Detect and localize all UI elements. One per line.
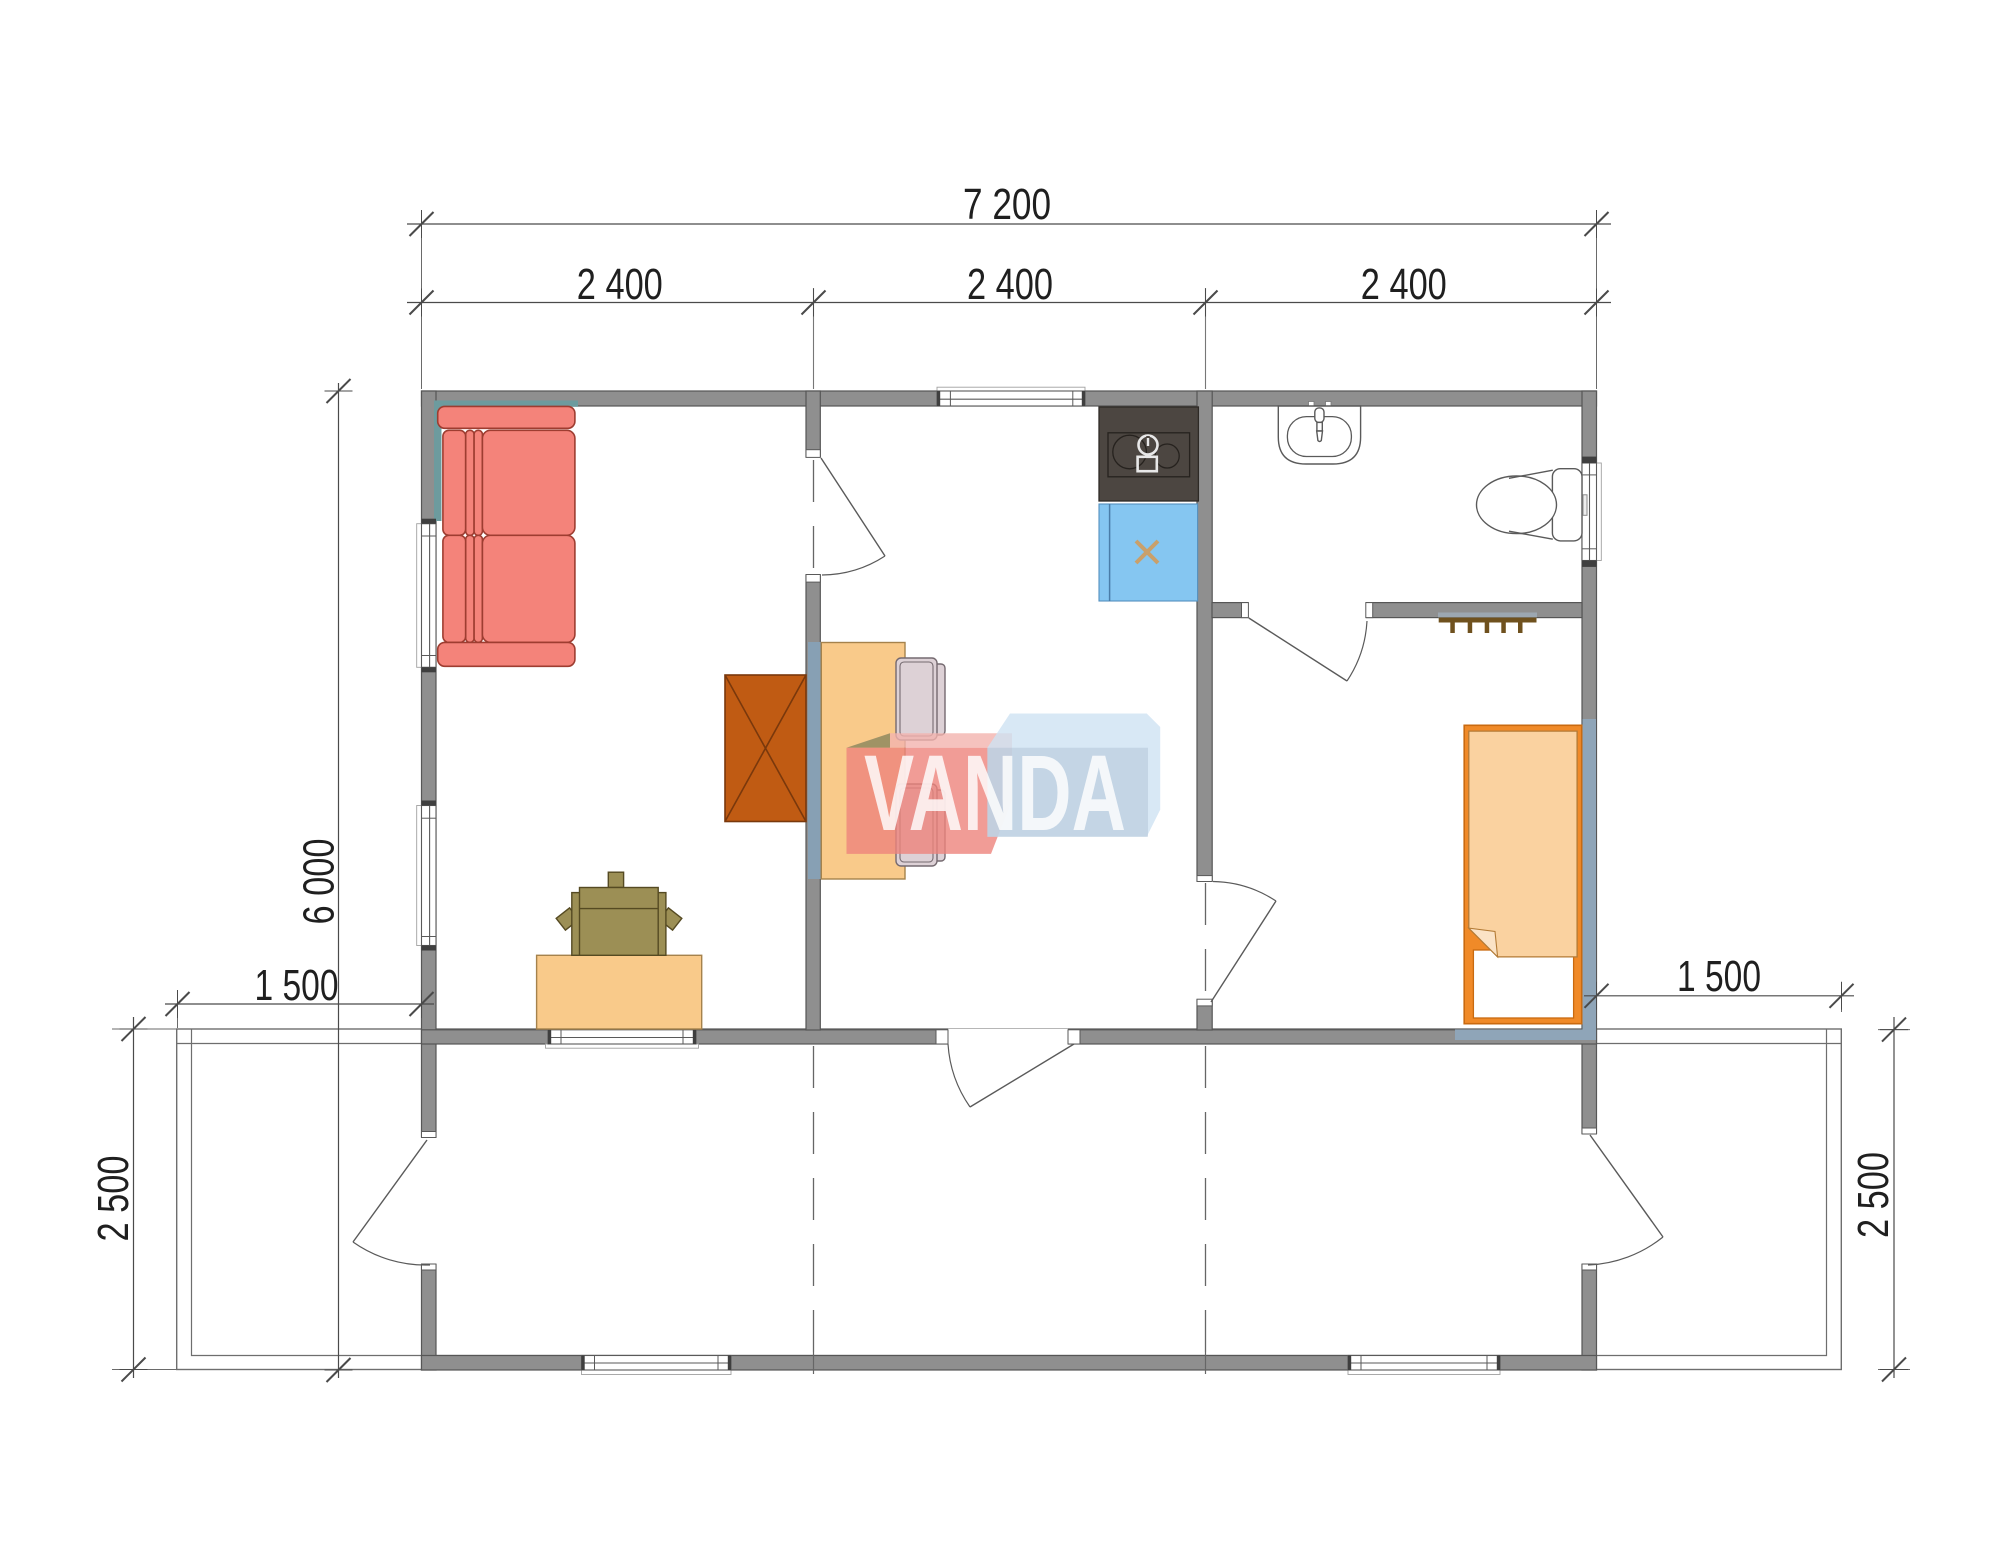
svg-text:2 400: 2 400 — [577, 260, 663, 309]
svg-text:2 500: 2 500 — [1849, 1152, 1898, 1238]
svg-text:7 200: 7 200 — [963, 180, 1051, 229]
svg-text:2 400: 2 400 — [1361, 260, 1447, 309]
svg-text:VANDA: VANDA — [864, 732, 1126, 853]
svg-text:6 000: 6 000 — [295, 839, 344, 925]
svg-text:1 500: 1 500 — [1677, 952, 1761, 1001]
svg-text:2 400: 2 400 — [967, 260, 1053, 309]
svg-text:1 500: 1 500 — [255, 961, 339, 1010]
svg-text:2 500: 2 500 — [89, 1156, 138, 1242]
